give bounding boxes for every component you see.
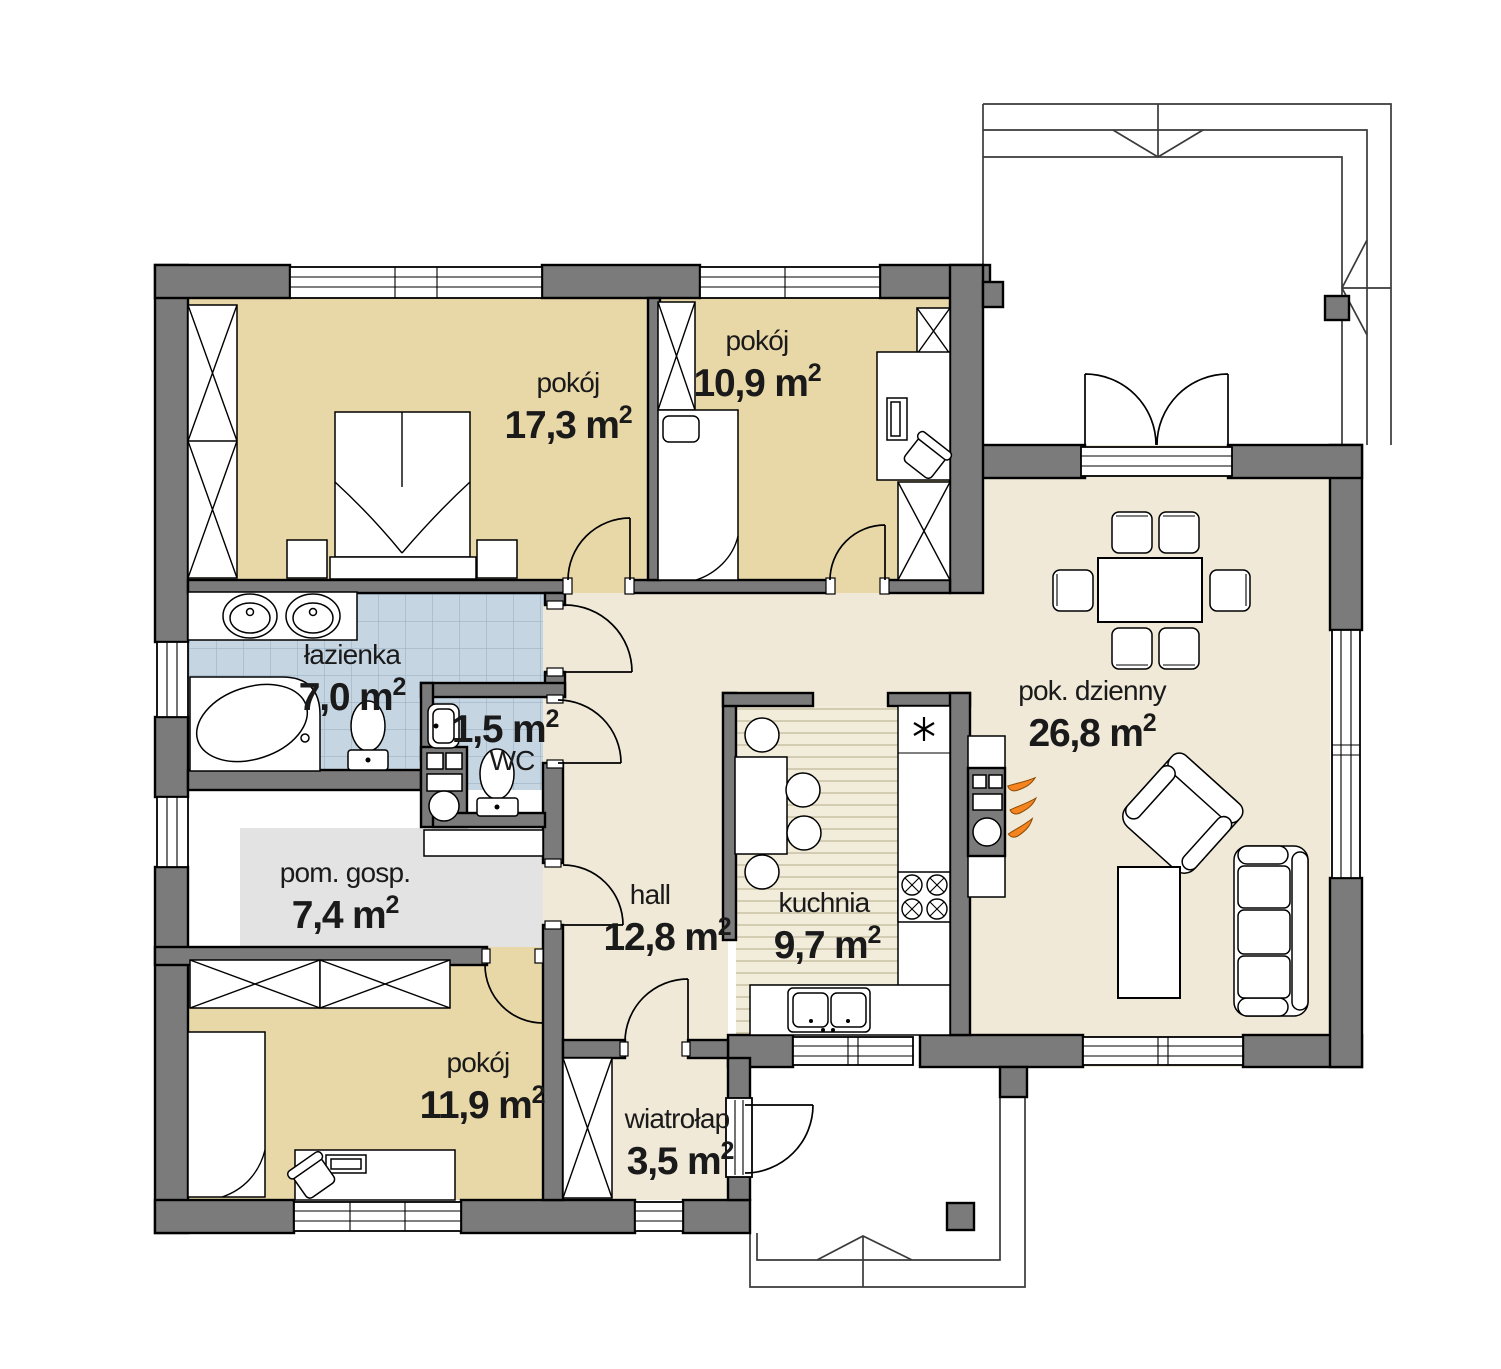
window <box>1332 630 1360 878</box>
coffee-table <box>1118 867 1180 998</box>
room-label-pok-dzienny-name: pok. dzienny <box>1018 675 1166 706</box>
wall <box>1000 1067 1027 1097</box>
window <box>157 797 188 867</box>
window <box>1083 1037 1243 1065</box>
wall <box>543 925 563 1200</box>
furniture-pom-gosp <box>424 830 543 856</box>
gap-fill <box>543 863 563 925</box>
wall <box>728 1175 750 1200</box>
porch-outer-line <box>750 1067 1025 1287</box>
wall <box>155 1200 294 1233</box>
room-label-pom-gosp-name: pom. gosp. <box>280 857 411 888</box>
wardrobe <box>190 960 320 1008</box>
room-label-hall-name: hall <box>630 879 670 910</box>
wardrobe <box>898 482 950 580</box>
dining-chair <box>1210 570 1250 611</box>
gap-fill <box>625 1040 688 1058</box>
wall <box>188 770 421 790</box>
room-label-hall-area: 12,8 m2 <box>604 913 731 959</box>
stool <box>745 718 779 752</box>
double-bed <box>330 412 476 579</box>
wall <box>723 693 736 940</box>
kitchen-sink-counter <box>750 985 950 1035</box>
kitchen-counter <box>898 706 950 991</box>
wardrobe <box>320 960 450 1008</box>
room-label-pokoj-2-name: pokój <box>726 325 789 356</box>
stool <box>745 855 779 889</box>
wall <box>188 580 567 593</box>
room-label-pokoj-2-area: 10,9 m2 <box>694 359 821 405</box>
room-label-pokoj-3-name: pokój <box>447 1047 510 1078</box>
gap-fill <box>567 580 630 593</box>
monitor <box>887 398 907 440</box>
room-label-pokoj-1-area: 17,3 m2 <box>505 401 632 447</box>
dining-chair <box>1112 628 1152 669</box>
single-bed <box>188 1032 265 1197</box>
window <box>290 267 542 298</box>
room-label-pok-dzienny-area: 26,8 m2 <box>1029 709 1156 755</box>
dining-table <box>1098 558 1202 622</box>
wall <box>630 580 830 593</box>
wall-chimney-stub <box>983 282 1003 307</box>
nightstand <box>287 540 327 578</box>
floor-plan-drawing: pokój 17,3 m2 pokój 10,9 m2 pok. dzienny… <box>0 0 1501 1369</box>
wall <box>920 1035 1083 1067</box>
wall <box>728 1058 750 1100</box>
dining-chair <box>1159 512 1199 553</box>
kitchen-table <box>735 757 787 854</box>
room-label-lazienka-area: 7,0 m2 <box>299 673 406 719</box>
floor-plan-page: pokój 17,3 m2 pokój 10,9 m2 pok. dzienny… <box>0 0 1501 1369</box>
wall <box>1330 878 1362 1067</box>
dining-chair <box>1112 512 1152 553</box>
room-label-pom-gosp-area: 7,4 m2 <box>292 891 399 937</box>
wardrobe <box>188 305 237 578</box>
wall <box>950 693 970 1035</box>
terrace-roof-outer-line <box>983 104 1391 445</box>
window <box>793 1037 913 1065</box>
window <box>157 642 188 717</box>
porch-column <box>947 1203 974 1230</box>
wardrobe <box>658 302 695 410</box>
wall <box>542 265 700 298</box>
entrance-door <box>726 1098 813 1177</box>
room-label-kuchnia-name: kuchnia <box>779 887 871 918</box>
room-label-pokoj-3-area: 11,9 m2 <box>420 1081 545 1127</box>
monitor <box>326 1155 366 1173</box>
worktop <box>424 830 543 856</box>
wardrobe <box>917 308 950 354</box>
window <box>635 1202 683 1231</box>
wall <box>155 265 290 298</box>
terrace-column <box>1325 296 1349 320</box>
terrace-door <box>1081 374 1232 476</box>
terrace <box>983 104 1391 445</box>
wall <box>688 1040 728 1058</box>
room-label-kuchnia-area: 9,7 m2 <box>774 921 881 967</box>
wall <box>155 867 188 1233</box>
room-label-lazienka-name: łazienka <box>304 639 402 670</box>
wall <box>421 683 565 697</box>
furniture-wiatrolap <box>563 1058 612 1198</box>
dining-chair <box>1159 628 1199 669</box>
wall <box>723 693 813 706</box>
stool <box>786 773 820 807</box>
sofa <box>1234 846 1308 1016</box>
single-bed <box>658 410 738 580</box>
porch <box>750 1067 1025 1287</box>
room-label-wc-name: WC <box>489 745 535 776</box>
window <box>294 1202 461 1231</box>
room-label-wiatrolap-area: 3,5 m2 <box>627 1137 734 1183</box>
wall <box>155 265 188 642</box>
washbasin <box>223 594 277 638</box>
wall <box>1228 445 1362 478</box>
wall <box>155 717 188 797</box>
wall <box>885 580 950 593</box>
wardrobe <box>563 1058 612 1198</box>
terrace-roof-inner-line <box>983 157 1342 445</box>
wall <box>461 1200 635 1233</box>
nightstand <box>477 540 517 578</box>
wall <box>683 1200 750 1233</box>
stove <box>898 872 950 922</box>
washbasin <box>286 594 340 638</box>
dining-chair <box>1053 570 1093 611</box>
wall <box>950 265 983 593</box>
window <box>700 267 880 298</box>
room-label-pokoj-1-name: pokój <box>537 367 600 398</box>
porch-roof-hip <box>817 1236 912 1287</box>
gap-fill <box>830 580 885 593</box>
room-label-wiatrolap-name: wiatrołap <box>624 1103 730 1134</box>
wall <box>563 1040 625 1058</box>
stool <box>787 816 821 850</box>
gap-fill <box>543 605 563 672</box>
